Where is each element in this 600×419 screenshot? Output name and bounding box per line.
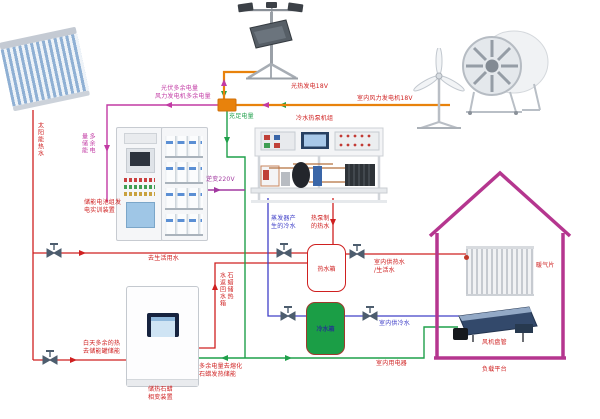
label-indoor-electricity: 室内用电器: [376, 360, 407, 368]
valve-icon: [363, 307, 377, 320]
label-pv-generation: 光热发电18V: [291, 83, 328, 91]
label-pv-surplus: 光伏多余电量: [161, 85, 198, 93]
label-day-surplus-heat: 白天多余的热 去储能罐储能: [83, 340, 120, 355]
label-fan-coil: 风机盘管: [482, 339, 507, 347]
cabinet-blue-panel: [126, 202, 155, 228]
inverter-wire: [205, 187, 245, 193]
paraffin-storage-device: [126, 286, 199, 387]
label-paraffin-device: 储热石蜡 相变装置: [148, 386, 173, 401]
radiator-inlet: [464, 255, 469, 260]
compressor: [292, 162, 310, 188]
valve-icon: [47, 244, 61, 257]
cabinet-screen: [130, 152, 150, 166]
pv-tracker: [226, 2, 318, 80]
label-sufficient-power: 充足电量: [229, 113, 254, 121]
wind-tunnel-fan: [452, 26, 550, 116]
label-paraffin-return: 石蜡储热 水返回水箱: [218, 272, 233, 307]
valve-icon: [43, 351, 57, 364]
heat-exchanger: [313, 166, 322, 186]
fan-coil-unit: [451, 302, 539, 344]
valve-icon: [281, 307, 295, 320]
label-heat-pump-unit: 冷水热泵机组: [296, 115, 333, 123]
valve-icon: [277, 244, 291, 257]
storage-control-cabinet: [116, 127, 163, 241]
label-inverter: 逆变220V: [206, 176, 235, 184]
label-to-domestic-water: 去生活用水: [148, 255, 179, 263]
label-indoor-cold-water: 室内供冷水: [379, 320, 410, 328]
fan-coil-pump: [453, 328, 468, 340]
label-heat-pump-hot: 热泵制 的热水: [311, 215, 330, 230]
label-surplus-melt-paraffin: 多余电量去熔化 石蜡发热储能: [199, 363, 242, 378]
hot-water-tank: 热水箱: [307, 244, 346, 292]
power-junction-box: [218, 99, 236, 111]
hot-water-tank-label: 热水箱: [317, 264, 335, 273]
label-load-platform: 负载平台: [482, 366, 507, 374]
label-evaporator-cold: 蒸发器产 生的冷水: [271, 215, 296, 230]
label-solar-hot-water: 太阳能热水: [36, 122, 44, 157]
lamp-icon: [266, 2, 277, 8]
valve-icon: [350, 245, 364, 258]
cold-water-tank-label: 冷水箱: [316, 324, 334, 333]
label-surplus-to-storage: 多余电 量储能: [80, 133, 95, 154]
label-indoor-hot-water: 室内供热水 /生活水: [374, 259, 405, 274]
device-screen: [151, 317, 175, 337]
fan-hub: [486, 60, 499, 73]
solar-collector: [2, 20, 90, 118]
label-radiator: 暖气片: [536, 262, 555, 270]
battery-cabinet: [161, 127, 208, 241]
label-wind-surplus: 风力发电机多余电量: [155, 93, 211, 101]
cold-water-tank: 冷水箱: [306, 302, 345, 355]
label-storage-device: 储能电池组发 电实训装置: [84, 199, 121, 214]
radiator: [466, 246, 534, 296]
system-schematic: 热水箱 冷水箱 太阳能热水 光伏多余电量 风力发电机多余电量 多余电 量储能 光…: [0, 0, 600, 419]
heat-pump-bench: [249, 126, 389, 206]
label-wind-generation: 室内风力发电机18V: [357, 95, 413, 103]
